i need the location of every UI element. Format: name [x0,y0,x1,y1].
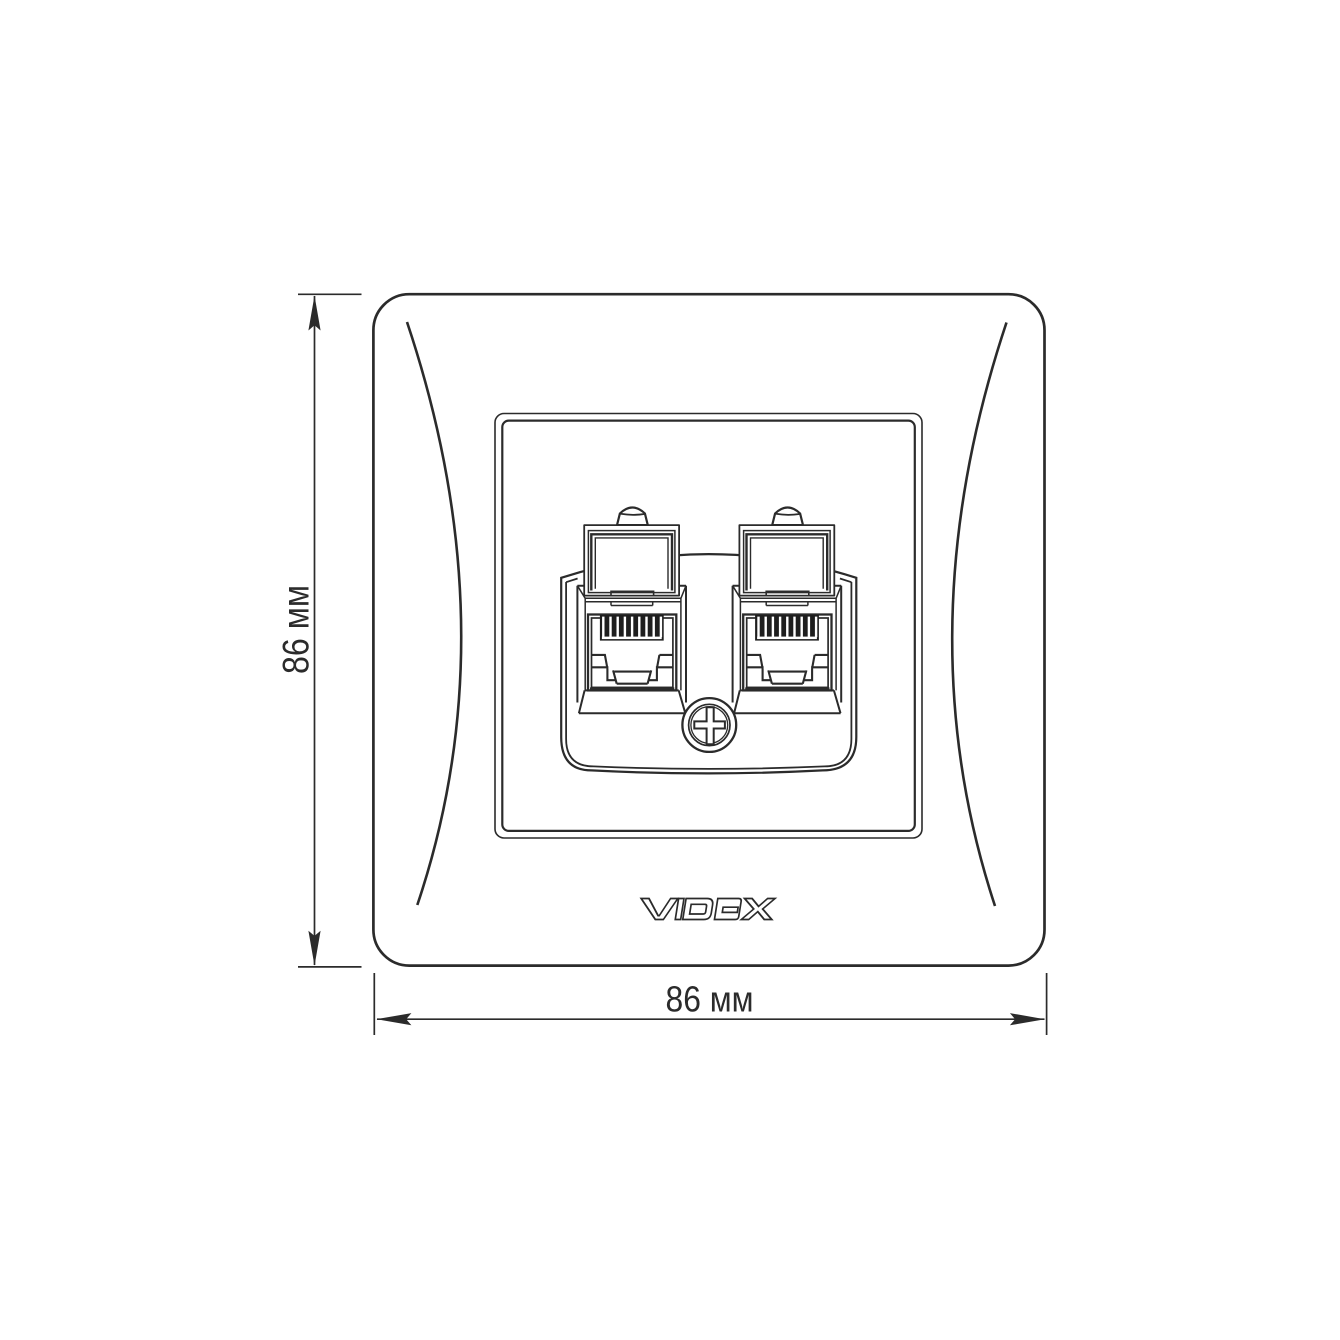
svg-text:86 мм: 86 мм [666,979,754,1020]
svg-text:86 мм: 86 мм [276,585,317,674]
